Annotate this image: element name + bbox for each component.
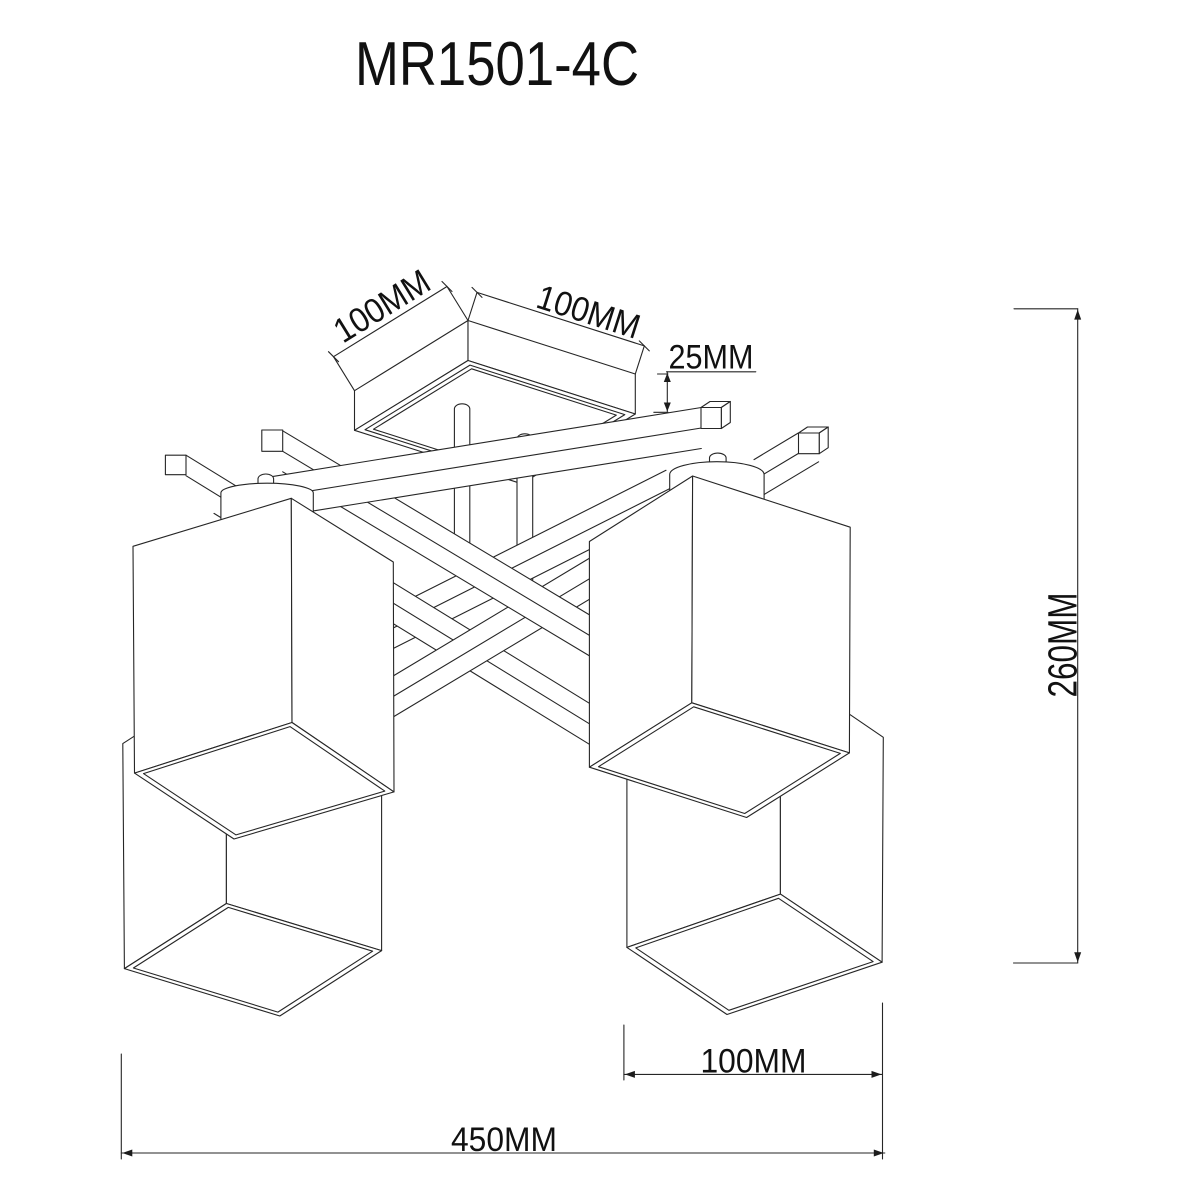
svg-text:100MM: 100MM <box>532 278 645 346</box>
svg-text:260MM: 260MM <box>1040 593 1086 698</box>
svg-text:450MM: 450MM <box>451 1121 557 1159</box>
svg-text:25MM: 25MM <box>669 339 754 377</box>
svg-text:MR1501-4C: MR1501-4C <box>355 30 639 99</box>
svg-text:100MM: 100MM <box>701 1043 807 1081</box>
svg-text:100MM: 100MM <box>327 263 437 351</box>
